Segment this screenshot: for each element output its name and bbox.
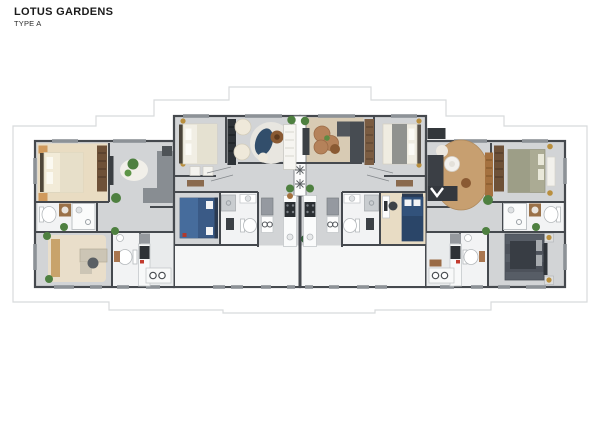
- round-table-top: [449, 161, 455, 167]
- ceiling-fan: [295, 165, 305, 175]
- burner: [286, 211, 288, 213]
- lamp: [180, 118, 185, 123]
- window: [52, 139, 78, 143]
- coffee-table: [88, 258, 99, 269]
- burner: [292, 204, 294, 206]
- sink: [117, 235, 124, 242]
- plant: [482, 227, 490, 235]
- pouf: [203, 167, 213, 176]
- sink: [532, 207, 539, 214]
- window: [522, 139, 548, 143]
- plant: [111, 227, 119, 235]
- plant: [306, 185, 314, 193]
- sofa: [428, 155, 444, 188]
- bed-headboard: [544, 243, 548, 275]
- burner: [306, 204, 308, 206]
- floor-plan-drawing: [0, 0, 600, 424]
- bath-mat: [114, 251, 120, 262]
- burner: [312, 204, 314, 206]
- lamp: [547, 190, 553, 196]
- tv-console: [428, 128, 446, 139]
- sofa-seat: [337, 122, 350, 137]
- window: [183, 114, 209, 118]
- shower: [72, 204, 95, 230]
- window: [113, 139, 146, 143]
- sink: [62, 207, 69, 214]
- sink: [287, 234, 293, 240]
- bench-wood: [430, 260, 442, 267]
- desk-chair: [389, 202, 398, 211]
- side-table: [461, 178, 471, 188]
- sofa-chaise: [143, 188, 173, 203]
- bed-pillow: [186, 129, 192, 141]
- toilet-bowl: [464, 250, 478, 265]
- plant: [483, 195, 493, 205]
- bed-duvet: [180, 198, 198, 238]
- bed-pillow: [536, 255, 542, 266]
- toilet-bowl: [244, 219, 257, 233]
- sofa-round: [314, 140, 328, 154]
- window: [357, 285, 369, 289]
- washer-drum: [267, 222, 272, 227]
- monitor: [384, 201, 388, 211]
- plant: [125, 170, 132, 177]
- wardrobe: [365, 119, 375, 165]
- pouf: [258, 153, 268, 163]
- sofa: [350, 122, 364, 163]
- lamp: [547, 144, 553, 150]
- bed-pillow: [409, 129, 415, 141]
- washer-drum: [333, 222, 338, 227]
- window: [526, 285, 546, 289]
- room-entry-floor: [302, 246, 426, 287]
- plant: [301, 117, 309, 125]
- window: [54, 285, 74, 289]
- fridge: [262, 198, 274, 215]
- sink: [307, 234, 313, 240]
- burner: [286, 204, 288, 206]
- tv-console: [109, 156, 114, 185]
- window: [375, 285, 387, 289]
- nightstand: [39, 193, 48, 201]
- window: [33, 244, 37, 270]
- bed-pillow: [538, 169, 544, 180]
- plant: [532, 223, 540, 231]
- bench: [547, 157, 555, 186]
- toilet-bowl: [42, 207, 56, 223]
- bed-headboard: [179, 125, 183, 164]
- sink: [150, 272, 156, 278]
- toilet-bowl: [544, 207, 558, 223]
- washer-drum: [262, 222, 267, 227]
- window: [318, 114, 355, 118]
- plant: [60, 223, 68, 231]
- bench-wood: [51, 239, 60, 277]
- bed-duvet: [508, 150, 530, 193]
- sofa-white: [284, 125, 297, 170]
- window: [231, 285, 243, 289]
- burner: [292, 211, 294, 213]
- cushion-green: [324, 135, 330, 141]
- stove: [451, 246, 461, 259]
- bed-pillow: [405, 200, 412, 207]
- shoe-rack: [396, 180, 413, 187]
- bed-pillow: [206, 201, 213, 209]
- side-table-tray: [274, 134, 280, 140]
- bed-pillow: [409, 144, 415, 156]
- plant: [286, 185, 294, 193]
- lamp: [546, 277, 551, 282]
- bath-mat: [226, 218, 234, 230]
- bed-headboard: [215, 198, 219, 239]
- sink: [465, 235, 472, 242]
- window: [471, 285, 483, 289]
- window: [213, 285, 225, 289]
- plant: [43, 232, 51, 240]
- burner: [306, 211, 308, 213]
- cushion-red: [183, 233, 187, 237]
- basket: [287, 193, 293, 199]
- bed-duvet: [60, 153, 83, 193]
- toilet-tank: [133, 250, 137, 264]
- toilet-bowl: [344, 219, 357, 233]
- fridge: [139, 234, 150, 244]
- shower: [504, 204, 527, 230]
- sink: [349, 196, 355, 202]
- stove: [140, 246, 150, 259]
- window: [329, 285, 339, 289]
- ceiling-fan: [295, 179, 305, 189]
- bed-headboard: [417, 125, 421, 164]
- bed-duvet: [197, 124, 217, 164]
- window: [117, 285, 129, 289]
- pouf: [190, 167, 200, 176]
- toilet-bowl: [118, 250, 132, 265]
- plant: [128, 159, 139, 170]
- bed-pillow: [536, 240, 542, 251]
- fridge: [450, 234, 461, 244]
- window: [305, 285, 313, 289]
- fridge: [327, 198, 339, 215]
- sofa: [157, 151, 173, 188]
- bed-pillow: [186, 144, 192, 156]
- tv-console: [303, 128, 310, 155]
- kettle-red: [456, 260, 460, 264]
- shoe-rack: [187, 180, 204, 187]
- sink: [159, 272, 165, 278]
- project-title: LOTUS GARDENS: [14, 6, 113, 19]
- window: [245, 114, 282, 118]
- bed-blanket: [510, 241, 536, 269]
- shower-drain: [508, 207, 514, 213]
- sink: [432, 272, 438, 278]
- bed-pillow: [47, 157, 54, 169]
- window: [498, 285, 510, 289]
- burner: [312, 211, 314, 213]
- floor-plan-page: LOTUS GARDENS TYPE A: [0, 0, 600, 424]
- window: [563, 244, 567, 270]
- plant: [45, 275, 53, 283]
- sink: [245, 196, 251, 202]
- washer-drum: [328, 222, 333, 227]
- window: [90, 285, 102, 289]
- shower: [365, 195, 379, 211]
- bath-mat: [366, 218, 374, 230]
- plant: [287, 116, 295, 124]
- armchair: [234, 144, 250, 160]
- shower-drain: [76, 207, 82, 213]
- title-block: LOTUS GARDENS TYPE A: [14, 6, 113, 28]
- bed-blanket: [392, 124, 407, 164]
- window: [563, 158, 567, 184]
- coffee-table: [330, 144, 340, 154]
- plant: [111, 193, 121, 203]
- lamp: [416, 118, 421, 123]
- bed-pillow: [538, 154, 544, 165]
- cooktop: [305, 202, 316, 217]
- shower: [222, 195, 236, 211]
- bath-mat: [479, 251, 485, 262]
- armchair: [162, 146, 172, 156]
- lamp: [546, 235, 551, 240]
- armchair: [235, 119, 251, 135]
- bed-pillow: [414, 200, 421, 207]
- kettle-red: [140, 260, 144, 264]
- bed-pillow: [47, 172, 54, 184]
- bed-headboard: [40, 153, 44, 192]
- cabinet-wood: [485, 153, 493, 197]
- bed-pillow: [206, 227, 213, 235]
- sink: [441, 272, 447, 278]
- bed-duvet: [402, 216, 423, 241]
- cooktop: [285, 202, 296, 217]
- window: [261, 285, 271, 289]
- window: [391, 114, 417, 118]
- room-entry-floor: [175, 246, 299, 287]
- window: [287, 285, 295, 289]
- window: [33, 158, 37, 184]
- plan-type-label: TYPE A: [14, 19, 113, 28]
